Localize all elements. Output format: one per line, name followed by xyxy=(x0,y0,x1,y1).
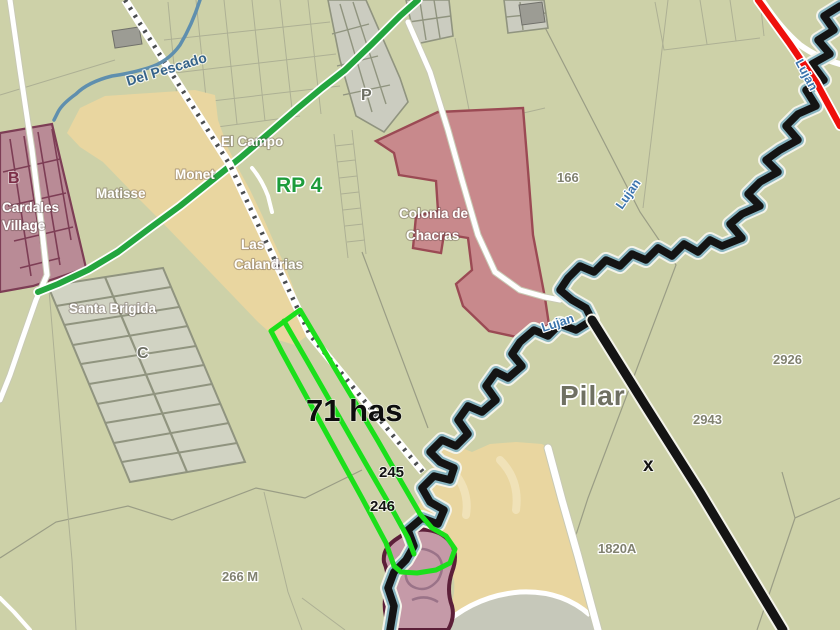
label-colonia-line1: Colonia de xyxy=(399,206,468,221)
label-zone-c: C xyxy=(137,345,149,362)
map-svg: Del Pescado El Campo Monet Matisse Carda… xyxy=(0,0,840,630)
building-block xyxy=(112,27,142,48)
label-parcel-2926: 2926 xyxy=(773,352,802,367)
label-matisse: Matisse xyxy=(96,186,146,201)
label-highway-rp4: RP 4 xyxy=(276,174,323,197)
label-las-calandrias-line2: Calandrias xyxy=(234,257,303,272)
map-canvas[interactable]: Del Pescado El Campo Monet Matisse Carda… xyxy=(0,0,840,630)
label-zone-p: P xyxy=(361,87,372,104)
label-santa-brigida: Santa Brigida xyxy=(69,301,157,316)
label-parcel-1820a: 1820A xyxy=(598,541,637,556)
label-parcel-2943: 2943 xyxy=(693,412,722,427)
label-parcel-266m: 266 M xyxy=(222,569,258,584)
building-block xyxy=(519,2,545,25)
label-monet: Monet xyxy=(175,167,215,182)
label-marker-x: x xyxy=(643,455,654,476)
label-city-pilar: Pilar xyxy=(560,380,626,411)
label-cardales-line1: Cardales xyxy=(2,200,59,215)
label-el-campo: El Campo xyxy=(221,134,283,149)
label-lot-246: 246 xyxy=(370,498,395,515)
label-lot-245: 245 xyxy=(379,464,404,481)
label-cardales-line2: Village xyxy=(2,218,46,233)
label-las-calandrias-line1: Las xyxy=(241,237,264,252)
label-area-71has: 71 has xyxy=(306,393,403,428)
label-zone-b: B xyxy=(8,170,20,187)
label-colonia-line2: Chacras xyxy=(406,228,459,243)
label-parcel-166: 166 xyxy=(557,170,579,185)
